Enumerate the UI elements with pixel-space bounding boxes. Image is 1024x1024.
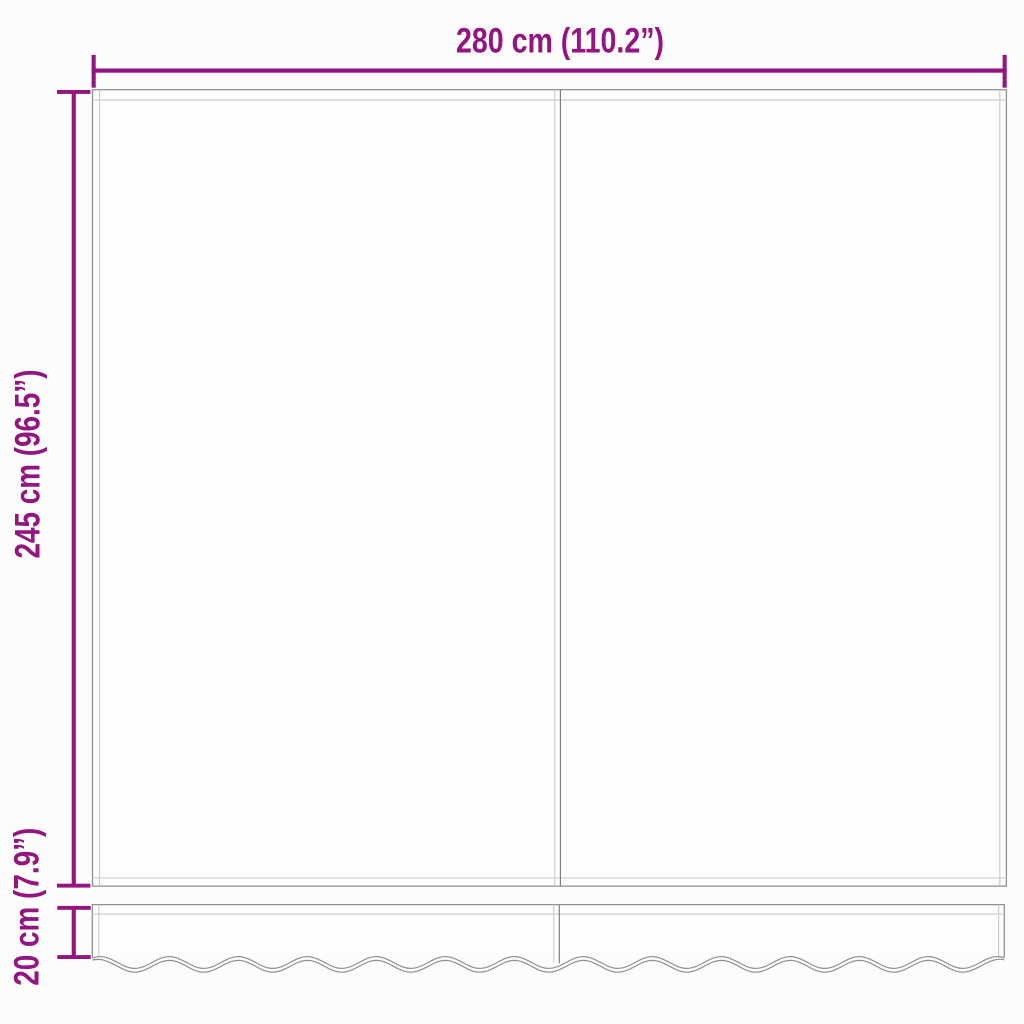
svg-text:280 cm (110.2”): 280 cm (110.2”) xyxy=(456,22,664,61)
svg-text:245 cm (96.5”): 245 cm (96.5”) xyxy=(9,370,48,559)
svg-text:20 cm (7.9”): 20 cm (7.9”) xyxy=(8,828,47,986)
